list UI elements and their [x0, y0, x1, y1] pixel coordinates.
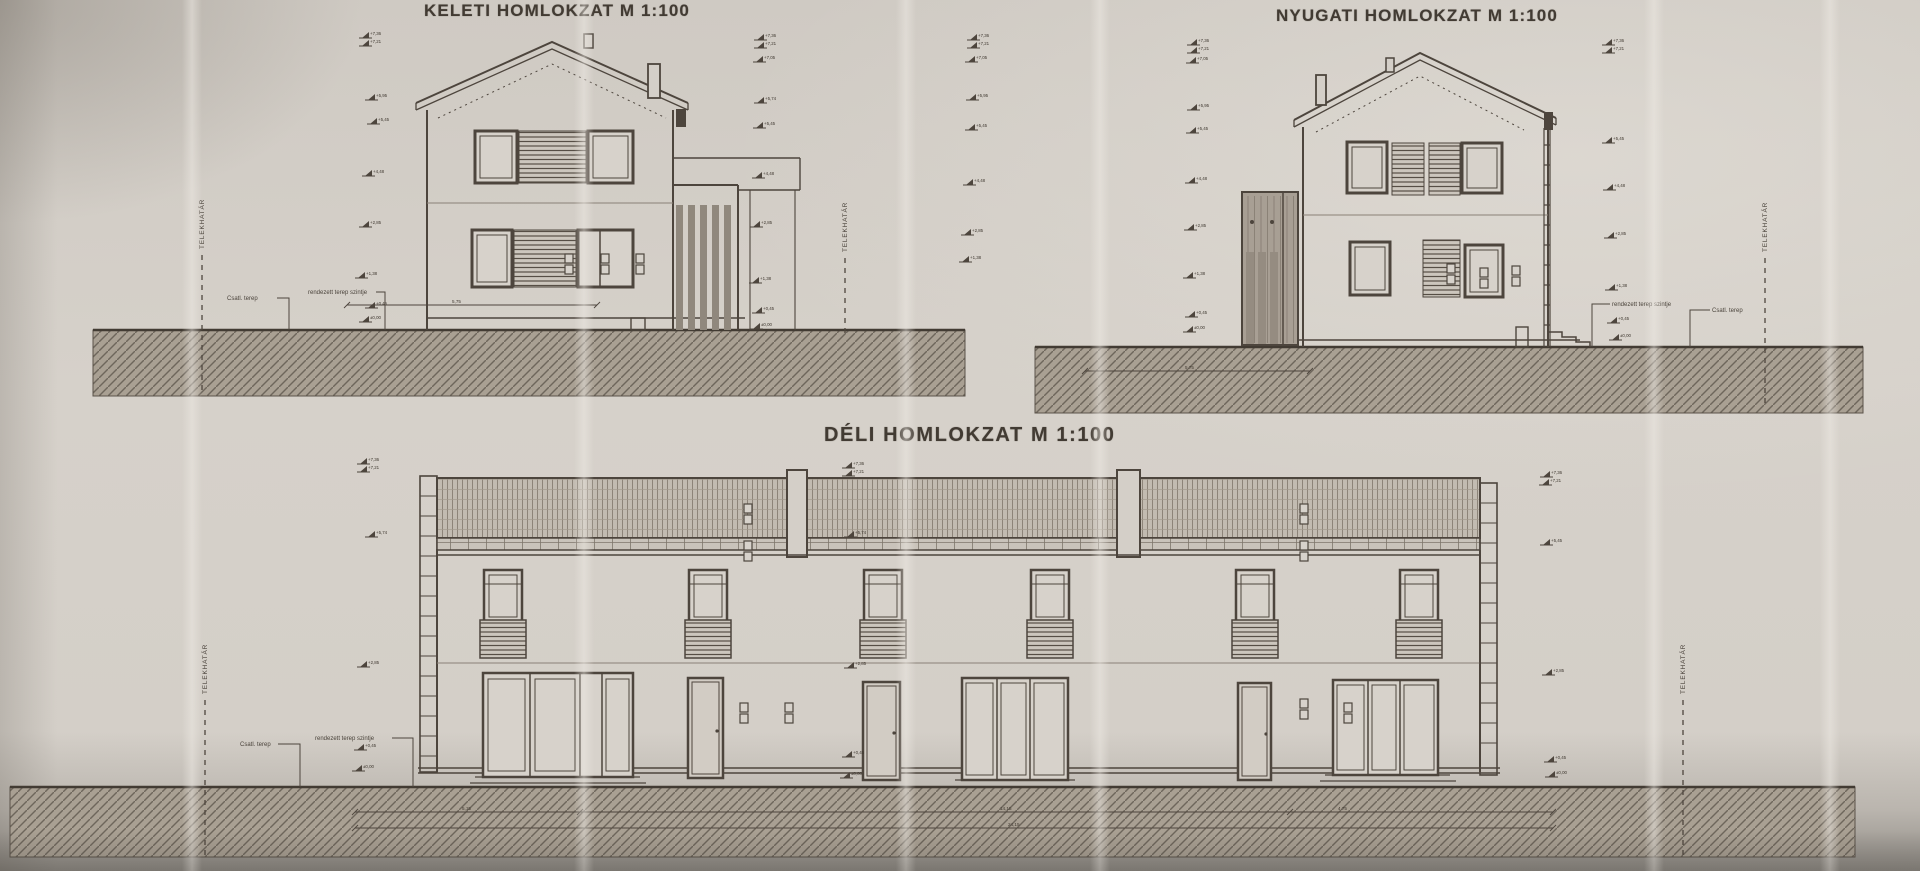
deli-ground-hatch [10, 787, 1855, 857]
elevation-marker-icon [1190, 104, 1197, 110]
nyugati-elevation-drawing [1242, 53, 1590, 347]
deli-title: DÉLI HOMLOKZAT M 1:100 [824, 424, 1116, 447]
elevation-marker-value: +7,21 [1198, 46, 1210, 51]
keleti-elevation-drawing [416, 34, 800, 330]
dimension-value: 5,75 [452, 299, 461, 304]
elevation-marker-icon [368, 531, 375, 537]
vent-symbol [565, 254, 573, 263]
elevation-marker-icon [1607, 232, 1614, 238]
deli-right-downpipe [1480, 483, 1497, 775]
property-boundary-label: TELEKHATÁR [1760, 202, 1769, 252]
keleti-upper-window-left [475, 131, 517, 183]
elevation-marker-icon [1543, 471, 1550, 477]
vent-symbol [1300, 710, 1308, 719]
vent-symbol [1300, 552, 1308, 561]
elevation-marker-value: ±0,00 [1194, 325, 1206, 330]
elevation-marker-value: ±0,00 [1556, 770, 1568, 775]
keleti-ground-hatch [93, 330, 965, 396]
elevation-marker-icon [355, 765, 362, 771]
deli-balconette-slats [480, 620, 526, 658]
nyugati-upper-slat-panel-2 [1429, 143, 1460, 195]
vent-symbol [601, 254, 609, 263]
elevation-marker-icon [1188, 177, 1195, 183]
keleti-lower-window [472, 230, 512, 287]
elevation-marker-value: +7,36 [1613, 38, 1625, 43]
elevation-marker-icon [1542, 479, 1549, 485]
elevation-marker-value: +4,48 [974, 178, 986, 183]
nyugati-lower-window [1350, 242, 1390, 295]
vent-symbol [636, 265, 644, 274]
keleti-upper-window-right [588, 131, 633, 183]
vent-symbol [601, 265, 609, 274]
deli-eave-band [437, 538, 1480, 550]
nyugati-chimney [1316, 75, 1326, 105]
elevation-marker-value: ±0,00 [851, 771, 863, 776]
elevation-marker-value: +1,38 [1194, 271, 1206, 276]
elevation-marker-icon [1605, 39, 1612, 45]
elevation-marker-value: ±0,00 [761, 322, 773, 327]
keleti-roof-dotted-line [438, 64, 666, 118]
vent-symbol [744, 504, 752, 513]
deli-upper-window [864, 570, 902, 622]
elevation-marker-value: +7,36 [978, 33, 990, 38]
elevation-marker-value: +5,45 [976, 123, 988, 128]
vent-symbol [636, 254, 644, 263]
elevation-marker-icon [360, 466, 367, 472]
terrain-label-leader [376, 292, 385, 330]
elevation-marker-value: +7,36 [1198, 38, 1210, 43]
elevation-marker-value: +7,21 [368, 465, 380, 470]
elevation-marker-value: +7,21 [765, 41, 777, 46]
terrain-label: rendezett terep szintje [315, 736, 375, 742]
nyugati-roof-dotted-line [1316, 76, 1524, 132]
elevation-marker-icon [1543, 539, 1550, 545]
deli-roof-pilaster-2 [1117, 470, 1140, 557]
elevation-marker-icon [752, 277, 759, 283]
vent-symbol [1300, 515, 1308, 524]
nyugati-title: NYUGATI HOMLOKZAT M 1:100 [1276, 6, 1558, 26]
elevation-marker-icon [365, 170, 372, 176]
elevation-marker-value: +7,21 [1613, 46, 1625, 51]
elevation-marker-icon [845, 462, 852, 468]
elevation-marker-value: ±0,00 [370, 315, 382, 320]
deli-upper-window [689, 570, 727, 622]
vent-symbol [1512, 277, 1520, 286]
elevation-marker-value: +5,95 [977, 93, 989, 98]
elevation-marker-value: +0,45 [853, 750, 865, 755]
terrain-label-leader [277, 298, 289, 330]
terrain-label-leader [1690, 310, 1710, 347]
dimension-value: 5,15 [462, 806, 471, 811]
nyugati-upper-slat-panel-1 [1392, 143, 1424, 195]
elevation-marker-value: +5,45 [1613, 136, 1625, 141]
elevation-marker-value: +1,38 [760, 276, 772, 281]
elevation-marker-value: +5,45 [1551, 538, 1563, 543]
elevation-marker-icon [1545, 669, 1552, 675]
deli-glazed-unit-b [955, 678, 1075, 780]
elevation-marker-value: +0,45 [1196, 310, 1208, 315]
terrain-label: rendezett terep szintje [308, 290, 368, 296]
vent-symbol [1480, 279, 1488, 288]
elevation-marker-value: +5,95 [1198, 103, 1210, 108]
vent-symbol [1344, 714, 1352, 723]
terrain-label: Csatl. terep [227, 296, 258, 302]
elevation-marker-icon [970, 42, 977, 48]
nyugati-upper-window-left [1347, 142, 1387, 193]
elevation-marker-value: +7,21 [978, 41, 990, 46]
nyugati-ground-hatch [1035, 347, 1863, 413]
elevation-marker-value: +5,74 [376, 530, 388, 535]
elevation-marker-icon [970, 34, 977, 40]
terrain-label: rendezett terep szintje [1612, 302, 1672, 308]
elevation-marker-value: +2,85 [370, 220, 382, 225]
elevation-marker-value: +7,36 [853, 461, 865, 466]
elevation-marker-icon [1608, 284, 1615, 290]
property-boundary-label: TELEKHATÁR [1678, 644, 1687, 694]
deli-balconette-slats [1027, 620, 1073, 658]
vent-symbol [1480, 268, 1488, 277]
nyugati-pergola-tower [1242, 192, 1298, 345]
elevation-marker-icon [362, 32, 369, 38]
deli-left-downpipe [420, 476, 437, 772]
elevation-marker-value: +5,74 [765, 96, 777, 101]
elevation-marker-value: +5,45 [764, 121, 776, 126]
elevation-marker-icon [1548, 771, 1555, 777]
dimension-value: 14,15 [1000, 806, 1012, 811]
elevation-marker-value: +7,36 [1551, 470, 1563, 475]
deli-balconette-slats [685, 620, 731, 658]
elevation-marker-value: +2,85 [761, 220, 773, 225]
elevation-marker-icon [1186, 272, 1193, 278]
elevation-marker-icon [1606, 184, 1613, 190]
elevation-marker-icon [360, 661, 367, 667]
deli-door-3 [1238, 683, 1271, 780]
keleti-title: KELETI HOMLOKZAT M 1:100 [424, 1, 690, 21]
elevation-marker-icon [757, 34, 764, 40]
elevation-marker-icon [756, 56, 763, 62]
elevation-marker-icon [1187, 224, 1194, 230]
elevation-marker-value: +5,45 [378, 117, 390, 122]
elevation-marker-value: +5,74 [855, 530, 867, 535]
deli-door-1 [688, 678, 723, 778]
elevation-marker-icon [1190, 39, 1197, 45]
elevation-marker-icon [1612, 334, 1619, 340]
elevation-marker-icon [964, 229, 971, 235]
elevation-marker-value: +4,48 [373, 169, 385, 174]
elevation-marker-icon [362, 316, 369, 322]
keleti-upper-slat-panel [519, 131, 586, 183]
deli-upper-window [1400, 570, 1438, 622]
elevation-marker-icon [1188, 311, 1195, 317]
deli-balconette-slats [860, 620, 906, 658]
keleti-eave-vent [676, 109, 686, 127]
elevation-marker-icon [968, 124, 975, 130]
nyugati-upper-window-right [1462, 143, 1502, 193]
elevation-marker-icon [755, 172, 762, 178]
architectural-drawing-sheet: +7,36+7,21+5,95+5,45+4,48+2,85+1,38+0,45… [0, 0, 1920, 871]
vent-symbol [785, 714, 793, 723]
nyugati-eave-vent [1544, 112, 1553, 130]
nyugati-ridge-vent [1386, 58, 1394, 72]
deli-balconette-slats [1232, 620, 1278, 658]
elevation-marker-value: +2,85 [1615, 231, 1627, 236]
elevation-marker-value: +0,45 [1618, 316, 1630, 321]
elevation-marker-icon [969, 94, 976, 100]
dimension-value: 4,75 [1338, 806, 1347, 811]
deli-door-2 [863, 682, 900, 780]
terrain-label-leader [392, 738, 413, 787]
nyugati-roof-fascia [1294, 60, 1556, 127]
elevation-marker-value: +5,95 [376, 93, 388, 98]
property-boundary-label: TELEKHATÁR [840, 202, 849, 252]
dimension-value: 5,75 [1185, 365, 1194, 370]
elevation-marker-icon [753, 221, 760, 227]
deli-upper-window [1031, 570, 1069, 622]
deli-glazed-unit-a [470, 673, 646, 783]
elevation-marker-icon [362, 40, 369, 46]
vent-symbol [740, 714, 748, 723]
keleti-chimney [648, 64, 660, 98]
vent-symbol [740, 703, 748, 712]
elevation-marker-value: +7,36 [370, 31, 382, 36]
vent-symbol [744, 541, 752, 550]
terrain-label: Csatl. terep [1712, 308, 1743, 314]
ground-hatches [10, 330, 1863, 857]
elevation-marker-icon [968, 56, 975, 62]
vent-symbol [744, 552, 752, 561]
elevation-marker-icon [757, 97, 764, 103]
elevation-marker-value: +7,21 [853, 469, 865, 474]
elevation-marker-icon [370, 118, 377, 124]
elevation-marker-value: +0,45 [763, 306, 775, 311]
elevation-marker-icon [1189, 127, 1196, 133]
deli-roof-pilaster-1 [787, 470, 807, 557]
property-boundary-label: TELEKHATÁR [197, 199, 206, 249]
vent-symbol [744, 515, 752, 524]
elevation-marker-icon [753, 323, 760, 329]
vent-symbol [785, 703, 793, 712]
elevation-marker-value: ±0,00 [1620, 333, 1632, 338]
vent-symbol [1512, 266, 1520, 275]
elevation-marker-icon [1605, 47, 1612, 53]
elevation-marker-icon [1186, 326, 1193, 332]
elevation-marker-icon [1547, 756, 1554, 762]
elevation-marker-value: +7,36 [765, 33, 777, 38]
elevation-marker-icon [845, 751, 852, 757]
deli-roof-tiles [437, 478, 1480, 538]
elevation-marker-icon [757, 42, 764, 48]
elevation-marker-value: +7,36 [368, 457, 380, 462]
elevation-marker-icon [755, 307, 762, 313]
elevation-marker-icon [357, 744, 364, 750]
vent-symbol [1344, 703, 1352, 712]
vent-symbol [1447, 275, 1455, 284]
dimension-value: 24,15 [1008, 822, 1020, 827]
elevation-marker-value: ±0,00 [363, 764, 375, 769]
elevation-marker-value: +2,85 [972, 228, 984, 233]
elevation-marker-value: +7,05 [1197, 56, 1209, 61]
elevation-marker-value: +7,21 [1550, 478, 1562, 483]
elevation-marker-icon [1605, 137, 1612, 143]
terrain-label-leader [278, 744, 300, 787]
elevation-marker-icon [368, 94, 375, 100]
keleti-pergola-slats [676, 205, 731, 330]
elevation-marker-icon [362, 221, 369, 227]
elevation-marker-value: +4,48 [763, 171, 775, 176]
elevation-marker-value: +2,85 [855, 661, 867, 666]
keleti-door-step [631, 318, 645, 330]
elevation-marker-icon [966, 179, 973, 185]
elevation-marker-value: +2,85 [1553, 668, 1565, 673]
terrain-label: Csatl. terep [240, 742, 271, 748]
keleti-ridge-vent [584, 34, 593, 48]
elevation-marker-value: +7,21 [370, 39, 382, 44]
elevation-marker-icon [962, 256, 969, 262]
elevation-marker-value: +1,38 [970, 255, 982, 260]
elevation-marker-value: +1,38 [366, 271, 378, 276]
elevation-marker-icon [360, 458, 367, 464]
elevation-marker-icon [845, 470, 852, 476]
deli-upper-windows [480, 570, 1442, 658]
elevation-marker-icon [756, 122, 763, 128]
nyugati-wall-edges [1303, 125, 1548, 347]
elevation-marker-value: +4,48 [1196, 176, 1208, 181]
elevation-marker-value: +0,45 [1555, 755, 1567, 760]
terrain-label-leader [1592, 304, 1610, 347]
deli-upper-window [484, 570, 522, 622]
vent-symbol [1447, 264, 1455, 273]
elevation-marker-value: +1,38 [1616, 283, 1628, 288]
elevation-marker-icon [1610, 317, 1617, 323]
vent-symbol [1300, 699, 1308, 708]
elevation-marker-value: +7,05 [764, 55, 776, 60]
elevation-marker-value: +5,45 [1197, 126, 1209, 131]
vent-symbol [565, 265, 573, 274]
vent-symbol [1300, 541, 1308, 550]
elevation-marker-value: +4,48 [1614, 183, 1626, 188]
elevation-marker-icon [358, 272, 365, 278]
deli-glazed-unit-c [1320, 680, 1456, 781]
nyugati-base-vent [1516, 327, 1528, 347]
elevation-marker-value: +2,85 [1195, 223, 1207, 228]
elevation-marker-value: +0,45 [365, 743, 377, 748]
property-boundary-label: TELEKHATÁR [200, 644, 209, 694]
elevation-marker-icon [1190, 47, 1197, 53]
elevation-marker-value: +2,85 [368, 660, 380, 665]
deli-upper-window [1236, 570, 1274, 622]
vent-symbol [1300, 504, 1308, 513]
deli-balconette-slats [1396, 620, 1442, 658]
elevation-marker-value: +7,05 [976, 55, 988, 60]
elevation-marker-icon [1189, 57, 1196, 63]
